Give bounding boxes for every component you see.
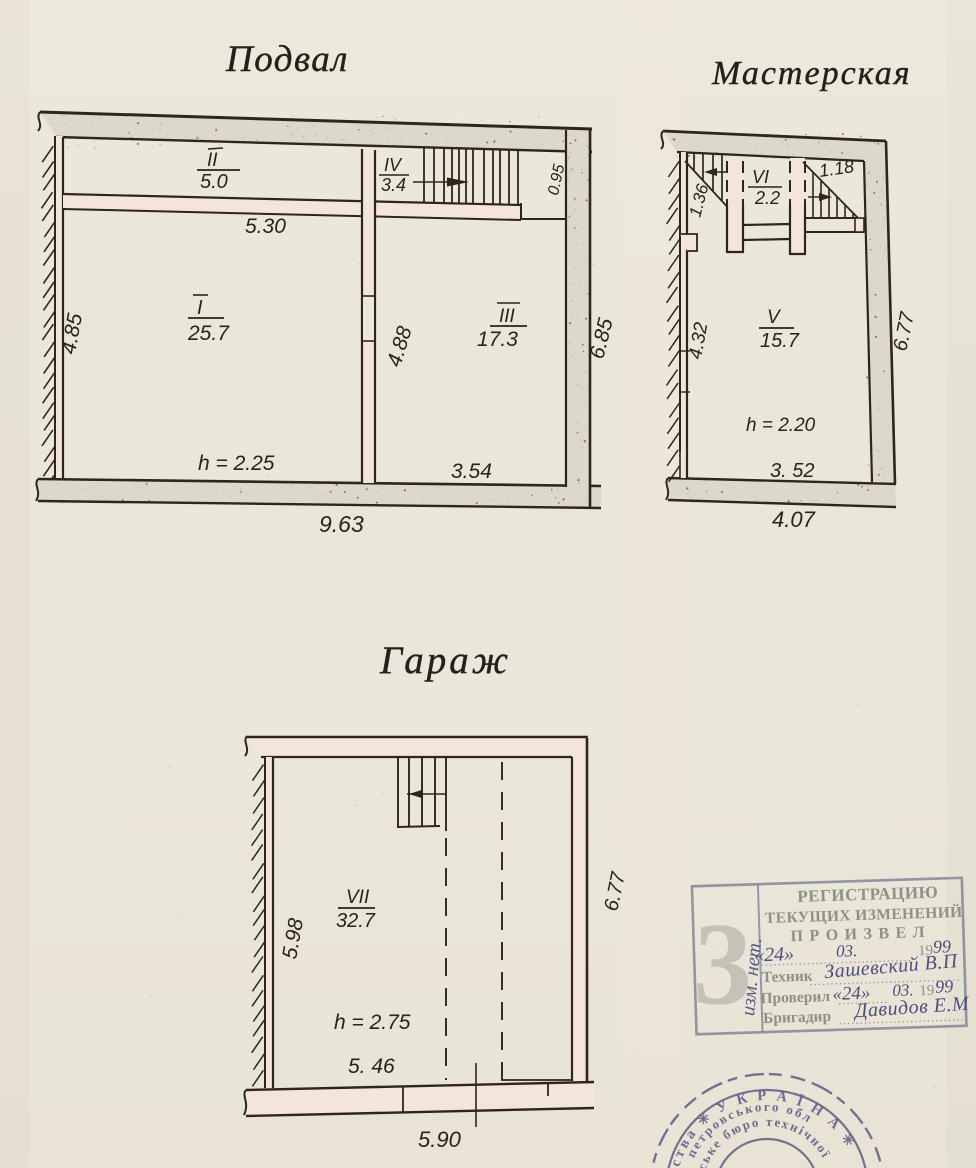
- svg-text:VI: VI: [752, 167, 769, 187]
- svg-text:32.7: 32.7: [336, 910, 376, 932]
- svg-text:«24»: «24»: [754, 943, 795, 966]
- svg-text:3.4: 3.4: [381, 175, 406, 195]
- svg-text:15.7: 15.7: [760, 330, 800, 352]
- svg-text:II: II: [207, 150, 218, 171]
- svg-text:I: I: [197, 297, 203, 319]
- svg-text:Мастерская: Мастерская: [711, 55, 912, 92]
- svg-text:Проверил: Проверил: [760, 988, 830, 1007]
- svg-text:Гараж: Гараж: [379, 639, 511, 682]
- svg-text:9.63: 9.63: [319, 511, 364, 537]
- svg-text:IV: IV: [384, 155, 403, 175]
- svg-text:5. 46: 5. 46: [348, 1055, 395, 1078]
- svg-text:3. 52: 3. 52: [770, 460, 814, 482]
- svg-text:h = 2.75: h = 2.75: [334, 1011, 411, 1034]
- svg-text:5.0: 5.0: [200, 171, 228, 193]
- svg-text:17.3: 17.3: [477, 328, 518, 351]
- svg-text:Бригадир: Бригадир: [763, 1008, 831, 1027]
- svg-text:5.90: 5.90: [418, 1127, 462, 1152]
- svg-text:3.54: 3.54: [451, 460, 492, 483]
- svg-text:h = 2.20: h = 2.20: [746, 415, 816, 436]
- svg-text:4.07: 4.07: [772, 507, 816, 532]
- svg-text:5.30: 5.30: [245, 215, 286, 238]
- svg-text:Подвал: Подвал: [225, 39, 349, 80]
- svg-text:h = 2.25: h = 2.25: [198, 452, 275, 475]
- svg-text:III: III: [499, 306, 516, 327]
- svg-text:Техник: Техник: [762, 968, 813, 987]
- svg-text:VII: VII: [346, 887, 370, 908]
- svg-text:25.7: 25.7: [187, 322, 230, 345]
- svg-text:2.2: 2.2: [754, 188, 780, 208]
